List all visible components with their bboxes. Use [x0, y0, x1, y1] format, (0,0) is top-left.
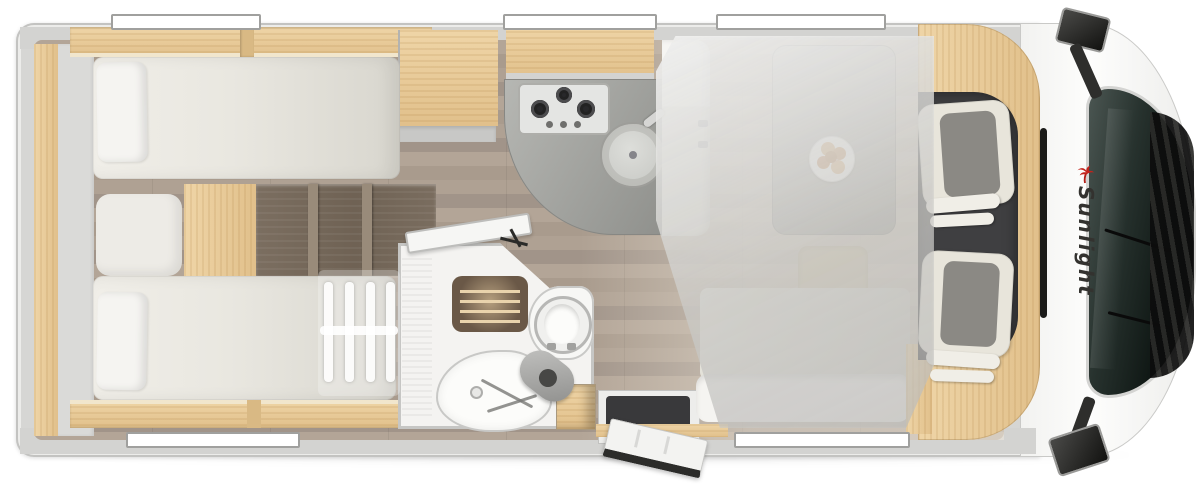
overhead-cabinet-divider: [240, 27, 254, 57]
sink-drain: [629, 151, 637, 159]
overhead-cabinet-bottom: [70, 400, 422, 428]
front-grille: [1150, 112, 1194, 378]
passenger-seat-cushion-bar: [930, 369, 994, 383]
overhead-cabinet-divider: [247, 400, 261, 428]
grate-slats: [460, 283, 520, 325]
window-bottom-dinette: [734, 432, 910, 448]
driver-seat-center: [939, 110, 1001, 198]
wardrobe-top: [398, 30, 498, 126]
pillow: [96, 62, 148, 163]
basin-drain: [470, 386, 483, 399]
gas-hob: [518, 83, 610, 135]
ladder-rail: [320, 326, 398, 335]
burner: [556, 87, 572, 103]
toilet-bowl: [534, 296, 592, 354]
rear-side-panel: [58, 44, 94, 436]
window-bottom-bedroom: [126, 432, 300, 448]
toilet-seat: [544, 304, 580, 344]
hob-knob: [560, 121, 567, 128]
between-bed-platform: [184, 184, 256, 276]
window-top-dinette: [716, 14, 886, 30]
hob-knob: [546, 121, 553, 128]
window-top-bedroom: [111, 14, 261, 30]
cab-side-window: [1040, 128, 1047, 318]
hob-knob: [574, 121, 581, 128]
between-bed-seat: [96, 194, 182, 276]
bathroom-wall-texture: [402, 258, 432, 418]
door-rib: [634, 429, 641, 447]
motorhome-floorplan: Sunlight: [0, 0, 1200, 488]
bunk-ladder-translucent: [318, 270, 400, 396]
kitchen-overhead-locker: [506, 25, 654, 79]
step-divider: [362, 184, 372, 276]
palm-tree-icon: [1076, 164, 1094, 184]
wardrobe-front-edge: [398, 126, 496, 142]
shower-wood-grate: [452, 276, 528, 332]
mixer-knob: [535, 365, 560, 390]
brand-wordmark: Sunlight: [1074, 186, 1098, 306]
pillow: [96, 292, 148, 391]
seat-hinge: [567, 343, 576, 350]
window-top-kitchen: [503, 14, 657, 30]
seat-hinge: [547, 343, 556, 350]
burner: [577, 100, 595, 118]
passenger-seat-center: [940, 261, 1000, 348]
rear-wall-wood-lining: [34, 44, 58, 436]
burner: [531, 100, 549, 118]
step-divider: [308, 184, 318, 276]
door-rib: [663, 436, 670, 454]
